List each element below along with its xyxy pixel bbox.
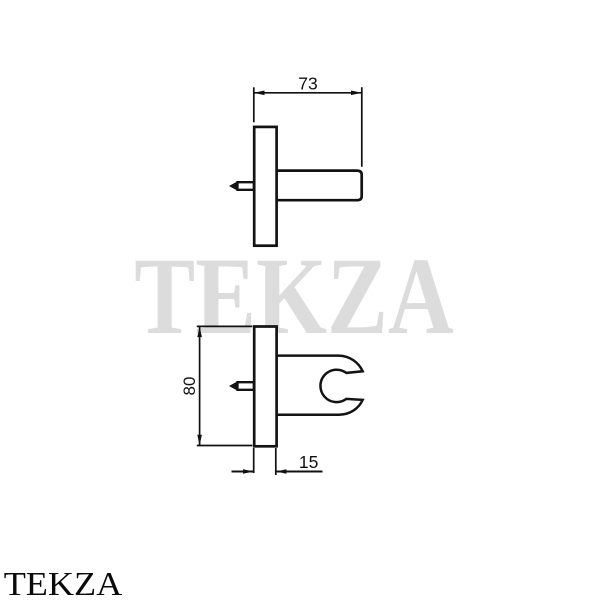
svg-text:15: 15 <box>299 452 318 472</box>
svg-text:80: 80 <box>180 377 199 396</box>
svg-text:73: 73 <box>298 74 317 94</box>
svg-text:TEKZA: TEKZA <box>4 565 123 600</box>
svg-text:TEKZA: TEKZA <box>134 235 454 357</box>
